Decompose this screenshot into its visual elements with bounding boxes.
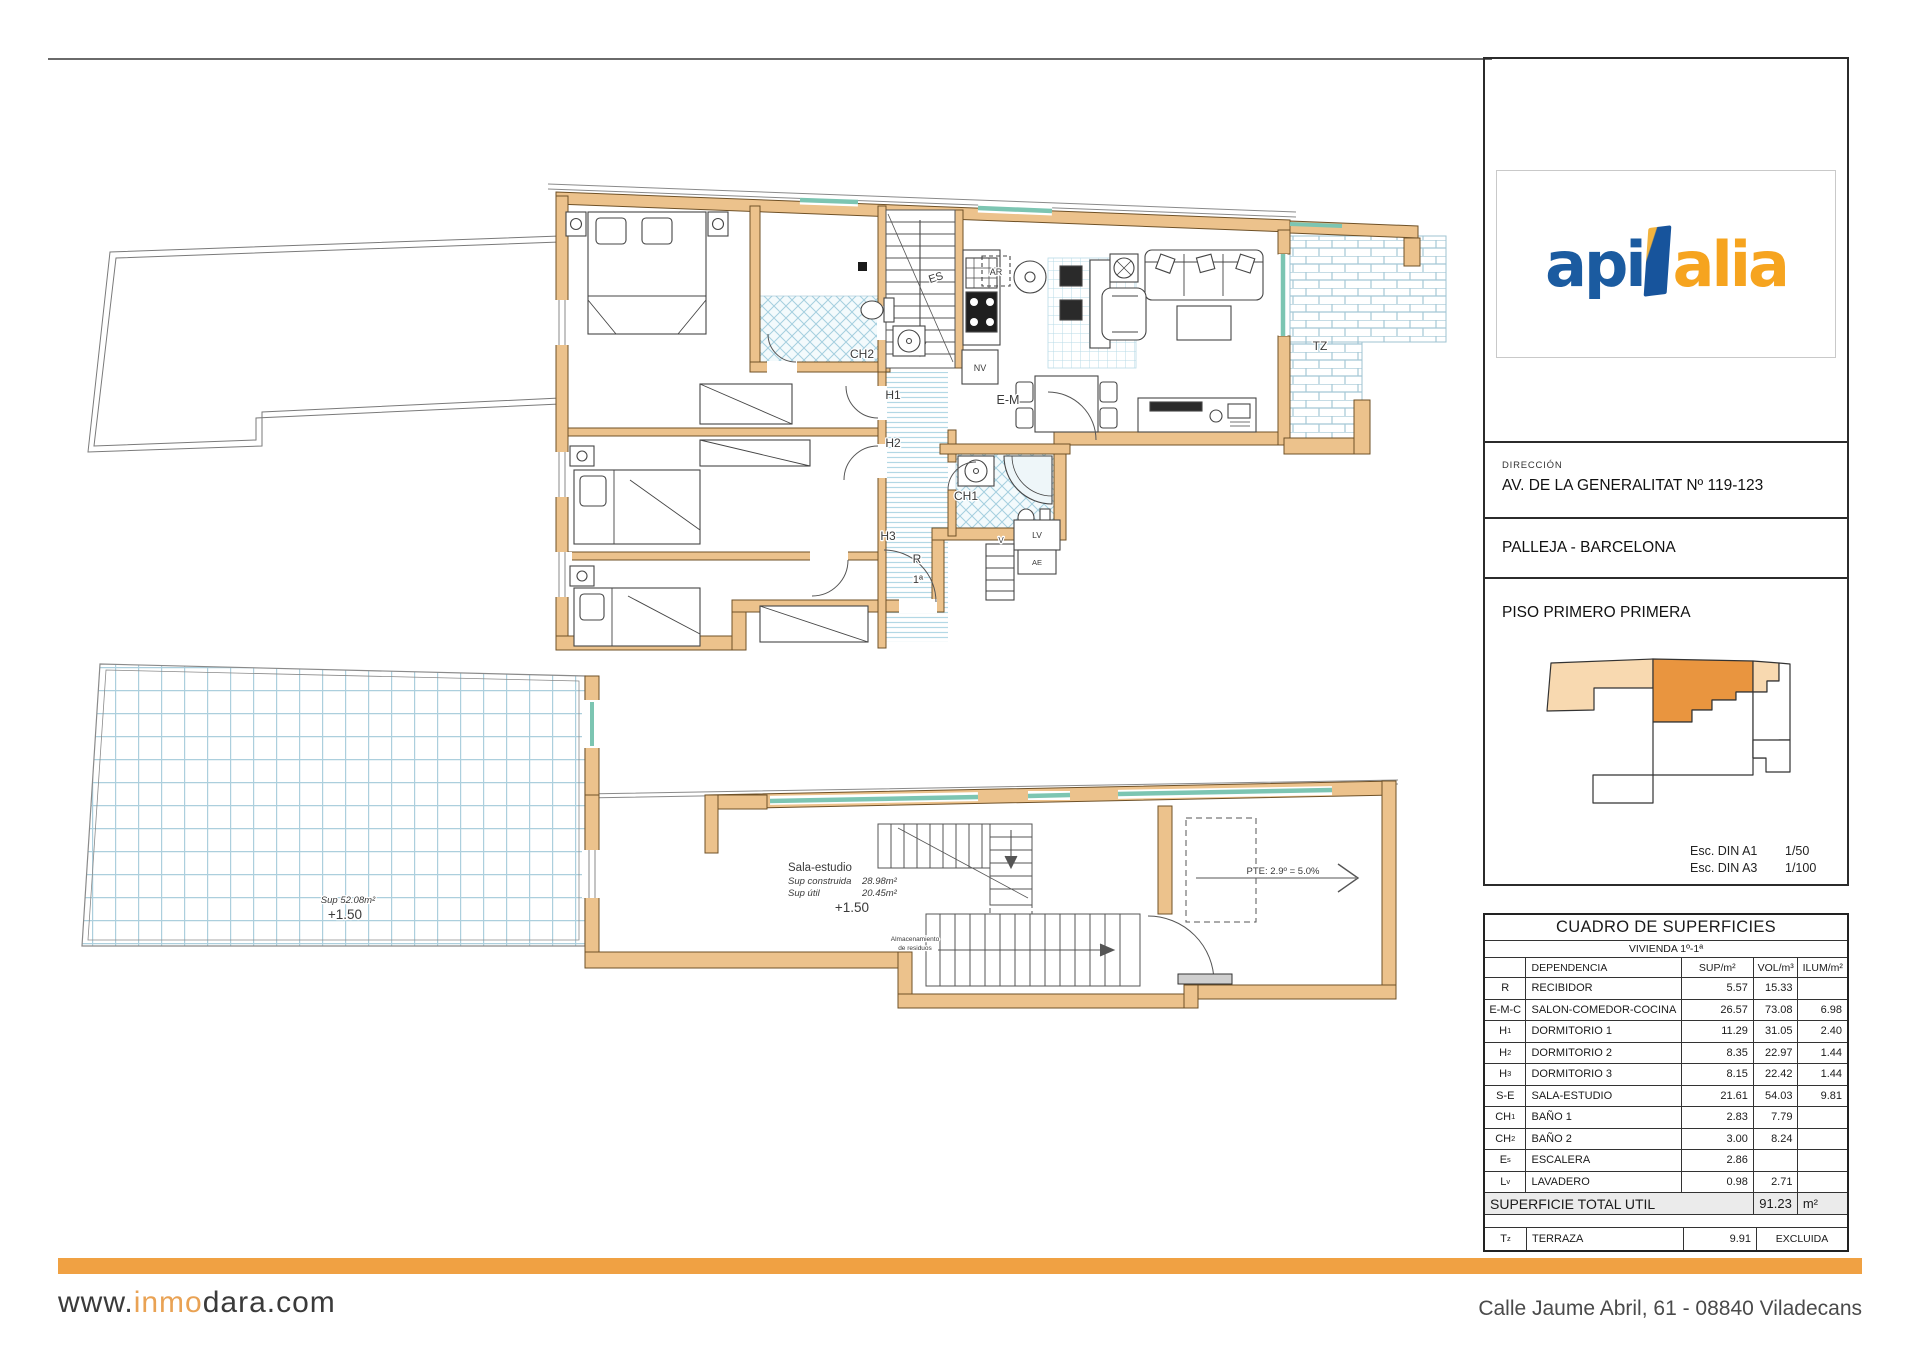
label-sup-built: Sup construida	[788, 876, 851, 887]
label-nv: NV	[974, 363, 987, 373]
label-lv: LV	[1032, 530, 1042, 540]
column-header: VOL/m³	[1754, 958, 1799, 977]
total-label: SUPERFICIE TOTAL UTIL	[1485, 1193, 1754, 1214]
label-terrace-sup: Sup 52.08m²	[321, 895, 376, 906]
row-name: BAÑO 2	[1526, 1129, 1681, 1150]
footer-accent-bar	[58, 1258, 1862, 1274]
office-address: Calle Jaume Abril, 61 - 08840 Viladecans	[1478, 1297, 1862, 1321]
table-subtitle: VIVIENDA 1º-1ª	[1485, 941, 1847, 957]
row-name: DORMITORIO 3	[1526, 1064, 1681, 1085]
panel-divider	[1483, 517, 1849, 519]
table-row: EsESCALERA2.86	[1485, 1150, 1847, 1172]
row-vol: 31.05	[1754, 1021, 1799, 1042]
row-sup: 2.86	[1682, 1150, 1754, 1171]
row-ilum	[1798, 1150, 1847, 1171]
address-value: AV. DE LA GENERALITAT Nº 119-123	[1502, 477, 1763, 495]
table-row: TzTERRAZA9.91EXCLUIDA	[1485, 1228, 1847, 1250]
label-sup-util: Sup útil	[788, 888, 821, 899]
row-name: DORMITORIO 1	[1526, 1021, 1681, 1042]
row-sup: 0.98	[1682, 1172, 1754, 1193]
city-value: PALLEJA - BARCELONA	[1502, 539, 1676, 557]
row-vol: 7.79	[1754, 1107, 1799, 1128]
row-sup: 9.91	[1684, 1228, 1757, 1250]
row-ilum: 9.81	[1798, 1086, 1847, 1107]
row-sup: 8.15	[1682, 1064, 1754, 1085]
site-mid: inmo	[134, 1286, 203, 1319]
label-door-no: 1ª	[913, 574, 924, 586]
table-row: CUADRO DE SUPERFICIES	[1485, 915, 1847, 941]
row-name: RECIBIDOR	[1526, 978, 1681, 999]
table-row: RRECIBIDOR5.5715.33	[1485, 978, 1847, 1000]
row-name: DORMITORIO 2	[1526, 1043, 1681, 1064]
label-r: R	[913, 552, 922, 566]
row-ilum	[1798, 1172, 1847, 1193]
table-row: H3DORMITORIO 38.1522.421.44	[1485, 1064, 1847, 1086]
row-code: Es	[1485, 1150, 1526, 1171]
column-header: ILUM/m²	[1798, 958, 1847, 977]
row-code: H2	[1485, 1043, 1526, 1064]
row-ilum	[1798, 1107, 1847, 1128]
label-tz: TZ	[1313, 339, 1328, 353]
label-em: E-M	[997, 393, 1020, 407]
surfaces-table: CUADRO DE SUPERFICIESVIVIENDA 1º-1ªDEPEN…	[1483, 913, 1849, 1252]
row-ilum	[1798, 1129, 1847, 1150]
column-header	[1485, 958, 1526, 977]
table-row: S-ESALA-ESTUDIO21.6154.039.81	[1485, 1086, 1847, 1108]
row-code: H3	[1485, 1064, 1526, 1085]
label-h3: H3	[880, 529, 896, 543]
label-storage-1: Almacenamiento	[891, 936, 940, 943]
scale-value: 1/50	[1785, 844, 1835, 858]
row-vol: 22.97	[1754, 1043, 1799, 1064]
row-name: ESCALERA	[1526, 1150, 1681, 1171]
scale-row: Esc. DIN A3 1/100	[1690, 859, 1840, 876]
table-row: H1DORMITORIO 111.2931.052.40	[1485, 1021, 1847, 1043]
scale-label: Esc. DIN A1	[1690, 844, 1785, 858]
row-ilum: 1.44	[1798, 1043, 1847, 1064]
row-sup: 26.57	[1682, 1000, 1754, 1021]
row-code: H1	[1485, 1021, 1526, 1042]
plan-sheet: { "logo": {"blue": "api", "orange": "ali…	[0, 0, 1920, 1357]
row-sup: 11.29	[1682, 1021, 1754, 1042]
label-storage-2: de residuos	[898, 945, 932, 952]
label-terrace-level: +1.50	[328, 907, 362, 922]
row-name: BAÑO 1	[1526, 1107, 1681, 1128]
total-unit: m²	[1798, 1193, 1847, 1214]
row-ilum: 6.98	[1798, 1000, 1847, 1021]
table-row: CH1BAÑO 12.837.79	[1485, 1107, 1847, 1129]
row-code: CH2	[1485, 1129, 1526, 1150]
label-v: V	[998, 536, 1004, 545]
row-name: TERRAZA	[1527, 1228, 1684, 1250]
row-sup: 3.00	[1682, 1129, 1754, 1150]
logo-frame: apialia	[1496, 170, 1836, 358]
value-sup-util: 20.45m²	[861, 888, 898, 899]
row-vol: 8.24	[1754, 1129, 1799, 1150]
row-code: E-M-C	[1485, 1000, 1526, 1021]
table-row: H2DORMITORIO 28.3522.971.44	[1485, 1043, 1847, 1065]
value-sup-built: 28.98m²	[861, 876, 898, 887]
logo-door-icon	[1643, 225, 1671, 296]
logo-text-api: api	[1545, 228, 1643, 301]
row-vol: 2.71	[1754, 1172, 1799, 1193]
row-note: EXCLUIDA	[1757, 1228, 1847, 1250]
panel-divider	[1483, 577, 1849, 579]
row-vol: 54.03	[1754, 1086, 1799, 1107]
row-ilum	[1798, 978, 1847, 999]
row-vol: 73.08	[1754, 1000, 1799, 1021]
table-row: LvLAVADERO0.982.71	[1485, 1172, 1847, 1194]
row-sup: 5.57	[1682, 978, 1754, 999]
column-header: DEPENDENCIA	[1526, 958, 1681, 977]
row-code: S-E	[1485, 1086, 1526, 1107]
website-link[interactable]: www.inmodara.com	[58, 1286, 336, 1320]
row-vol	[1754, 1150, 1799, 1171]
row-ilum: 2.40	[1798, 1021, 1847, 1042]
scale-label: Esc. DIN A3	[1690, 861, 1785, 875]
adjacent-roof-outline	[88, 236, 560, 452]
floor-title: PISO PRIMERO PRIMERA	[1502, 604, 1691, 622]
row-name: SALA-ESTUDIO	[1526, 1086, 1681, 1107]
table-row: SUPERFICIE TOTAL UTIL91.23m²	[1485, 1193, 1847, 1215]
label-ch2: CH2	[850, 347, 874, 361]
table-title: CUADRO DE SUPERFICIES	[1485, 915, 1847, 940]
site-post: dara.com	[203, 1286, 336, 1319]
row-code: Lv	[1485, 1172, 1526, 1193]
upper-plan: CH2 ES H1 H2 H3 CH1 R 1ª V LV AE NV AR E…	[88, 184, 1446, 650]
scale-value: 1/100	[1785, 861, 1835, 875]
scale-row: Esc. DIN A1 1/50	[1690, 842, 1840, 859]
lower-plan: Sala-estudio Sup construida 28.98m² Sup …	[82, 664, 1398, 1008]
terrace-floor-lower	[1290, 342, 1362, 438]
row-sup: 21.61	[1682, 1086, 1754, 1107]
apialia-logo: apialia	[1545, 227, 1787, 301]
column-header: SUP/m²	[1682, 958, 1754, 977]
site-pre: www.	[58, 1286, 134, 1319]
label-ar: AR	[990, 267, 1003, 277]
row-code: Tz	[1485, 1228, 1527, 1250]
row-vol: 15.33	[1754, 978, 1799, 999]
row-name: SALON-COMEDOR-COCINA	[1526, 1000, 1681, 1021]
top-rule	[48, 58, 1492, 60]
label-ae: AE	[1032, 558, 1042, 567]
row-name: LAVADERO	[1526, 1172, 1681, 1193]
label-studio: Sala-estudio	[788, 862, 852, 874]
row-code: CH1	[1485, 1107, 1526, 1128]
label-slope: PTE: 2.9º = 5.0%	[1247, 866, 1320, 877]
scale-block: Esc. DIN A1 1/50 Esc. DIN A3 1/100	[1690, 842, 1840, 876]
panel-divider	[1483, 441, 1849, 443]
label-h1: H1	[885, 388, 901, 402]
label-level: +1.50	[835, 900, 869, 915]
entry-stair	[926, 914, 1232, 986]
terrace-floor-upper	[1290, 236, 1446, 342]
row-ilum: 1.44	[1798, 1064, 1847, 1085]
table-row: DEPENDENCIASUP/m²VOL/m³ILUM/m²	[1485, 958, 1847, 978]
label-h2: H2	[885, 436, 901, 450]
table-row: VIVIENDA 1º-1ª	[1485, 941, 1847, 958]
row-vol: 22.42	[1754, 1064, 1799, 1085]
total-value: 91.23	[1754, 1193, 1798, 1214]
label-ch1: CH1	[954, 489, 978, 503]
row-sup: 8.35	[1682, 1043, 1754, 1064]
row-sup: 2.83	[1682, 1107, 1754, 1128]
address-label: DIRECCIÓN	[1502, 460, 1563, 471]
logo-text-alia: alia	[1673, 228, 1787, 301]
table-row: CH2BAÑO 23.008.24	[1485, 1129, 1847, 1151]
row-code: R	[1485, 978, 1526, 999]
table-row: E-M-CSALON-COMEDOR-COCINA26.5773.086.98	[1485, 1000, 1847, 1022]
table-row	[1485, 1215, 1847, 1228]
